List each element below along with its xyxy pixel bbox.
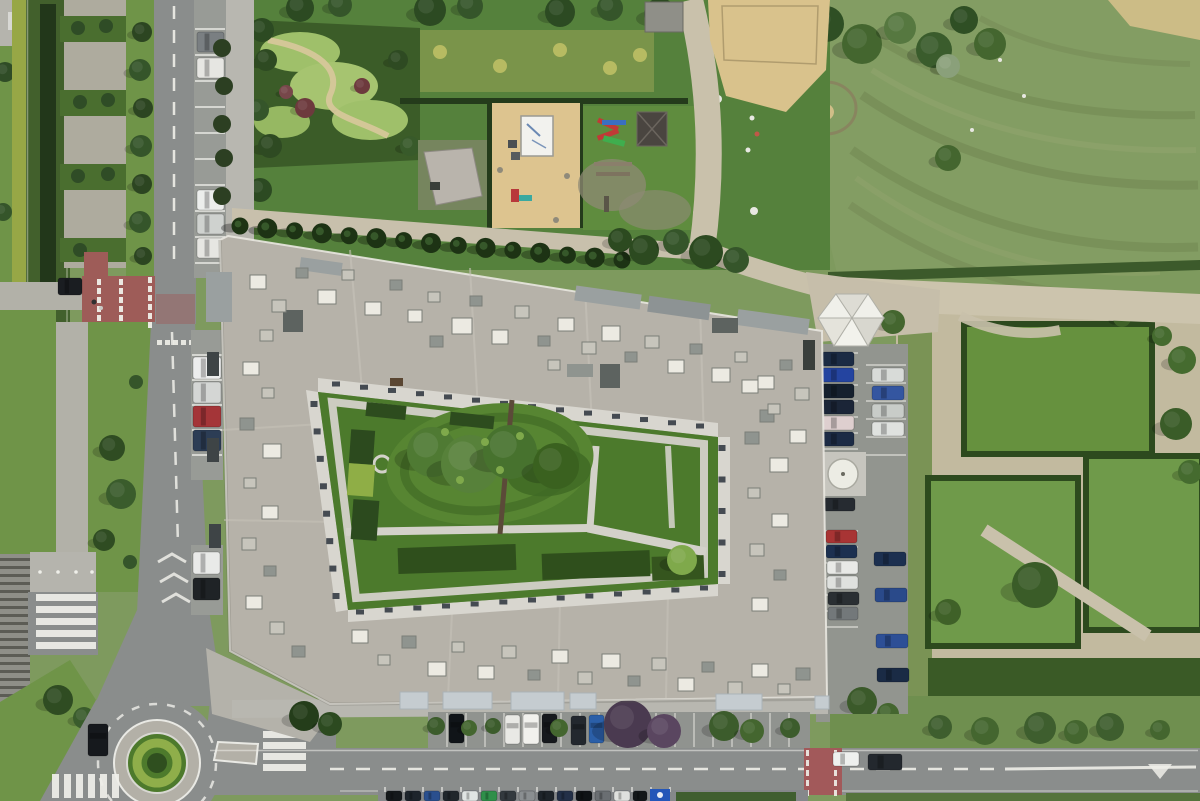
windows-south [643, 590, 651, 595]
hvac-unit [283, 310, 303, 332]
pavilion-tent [521, 116, 553, 156]
street-tree-light [132, 213, 143, 224]
parked-car-black-glass [201, 580, 206, 599]
wood-frame [596, 172, 630, 176]
purple-tree-light [610, 705, 634, 729]
parked-car [822, 384, 854, 398]
grove-tree-light [954, 9, 968, 23]
verge-bush-light [1028, 716, 1044, 732]
parked-car [822, 368, 854, 382]
zebra-south [76, 774, 83, 798]
median-tree-light [96, 531, 107, 542]
parked-car-glass [831, 370, 837, 381]
bottom-car-glass [580, 793, 583, 800]
roof-skylight [243, 362, 259, 375]
corner-tree-light [321, 715, 333, 727]
bottom-car-glass [466, 793, 469, 800]
parked-car [822, 416, 854, 430]
stair-steps [0, 662, 30, 665]
hedge-row [60, 16, 130, 42]
roof-skylight [272, 300, 286, 312]
bottom-bay-ticks [612, 787, 614, 792]
flowers-yellow [633, 48, 647, 62]
roof-skylight [502, 646, 516, 658]
roof-skylight [250, 275, 266, 289]
conifer-tip [344, 230, 351, 237]
conifer-tip [316, 227, 324, 235]
roof-skylight [260, 330, 273, 341]
bollards [74, 570, 78, 574]
field-flowers [998, 58, 1002, 62]
stair-steps [0, 582, 30, 585]
south-verge [830, 714, 1200, 748]
entrance-canopy [815, 696, 829, 709]
conifer-tip [480, 242, 488, 250]
yield-dots [165, 340, 170, 345]
parked-car-glass [831, 402, 837, 413]
parked-van-white-glass [525, 722, 538, 727]
parked-car-glass [883, 554, 889, 565]
windows-south [413, 606, 421, 611]
parked-car [872, 404, 904, 418]
roof-skylight [246, 596, 262, 609]
picnic-table [508, 140, 517, 148]
zebra-west [36, 642, 96, 649]
crossing-dots [148, 286, 152, 292]
row-shrubs [99, 19, 113, 33]
roof-skylight [778, 684, 790, 694]
courtyard-tree-light [490, 431, 517, 458]
bottom-car [538, 791, 554, 801]
parked-car-glass [881, 406, 887, 417]
worn-dirt [619, 190, 691, 230]
roof-skylight [270, 622, 284, 634]
windows-north [640, 417, 648, 422]
parked-car-glass [881, 388, 887, 399]
walker-red [755, 132, 760, 137]
roof-skylight [745, 432, 759, 444]
stair-steps [0, 630, 30, 633]
roof-skylight [652, 658, 666, 670]
bike-crossing-dashes [834, 780, 837, 786]
bottom-car-glass [637, 793, 640, 800]
entrance-canopy [400, 692, 428, 709]
park-plot [964, 324, 1152, 454]
cyclists [99, 306, 103, 310]
roof-skylight [602, 654, 620, 668]
car-on-road-white-glass [840, 754, 845, 765]
bike-crossing-dashes [834, 770, 837, 776]
bottom-bay-ticks [460, 787, 462, 792]
row-bush-light [487, 720, 495, 728]
stair-steps [0, 622, 30, 625]
hvac-unit [712, 318, 738, 333]
zebra-west [36, 630, 96, 637]
windows-west [317, 456, 324, 462]
roof-skylight [758, 376, 774, 389]
roof-skylight [735, 352, 747, 362]
courtyard-hedge [542, 550, 651, 580]
roof-skylight [780, 360, 792, 370]
crossing-dots [97, 288, 101, 294]
windows-north [696, 424, 704, 429]
bay-ticks [693, 713, 695, 747]
garden-bush-light [403, 138, 413, 148]
car-on-roundabout [88, 724, 108, 756]
stair-steps [0, 558, 30, 561]
windows-south [385, 608, 393, 613]
roof-skylight [690, 344, 702, 354]
roof-skylight [742, 380, 758, 393]
windows-north [360, 385, 368, 390]
entrance-canopy [716, 694, 762, 710]
parked-car-glass [836, 578, 842, 588]
conifer-tip [507, 245, 514, 252]
roof-skylight [728, 682, 742, 694]
parked-van-white [523, 714, 539, 744]
zebra-west [36, 594, 96, 601]
play-balls [750, 207, 758, 215]
roof-skylight [492, 330, 508, 344]
roof-skylight [262, 388, 274, 398]
canopy-highlights [516, 432, 524, 440]
west-grass [0, 310, 56, 554]
north-tree-light [611, 231, 623, 243]
slide-red [511, 189, 519, 202]
conifer-tip [235, 221, 242, 228]
bike-crossing-dashes [806, 750, 809, 756]
flowers-yellow [553, 43, 567, 57]
parked-car-glass [881, 370, 887, 381]
seam-metal-roof [206, 272, 232, 322]
windows-east [719, 445, 726, 451]
wedge-tree-light [47, 688, 62, 703]
stair-steps [0, 590, 30, 593]
minigolf-green [332, 100, 408, 140]
bottom-bay-ticks [441, 787, 443, 792]
bottom-bushes [676, 792, 796, 801]
bay-lines [195, 28, 225, 30]
bottom-bay-ticks [384, 787, 386, 792]
roof-skylight [262, 506, 278, 519]
canopy-highlights [456, 476, 464, 484]
bottom-car-glass [504, 793, 507, 800]
canopy-highlights [496, 466, 504, 474]
row-shrubs [71, 169, 85, 183]
roof-skylight [602, 326, 620, 341]
street-tree-light [135, 176, 145, 186]
verge-bush-light [931, 718, 943, 730]
willow-tree-light [939, 57, 951, 69]
yield-dots [181, 340, 186, 345]
windows-south [557, 596, 565, 601]
windows-south [585, 594, 593, 599]
parked-car [827, 576, 858, 589]
roof-skylight [774, 570, 786, 580]
hedge-row [60, 90, 130, 116]
sign-glyph [657, 792, 663, 798]
bollards [56, 570, 60, 574]
roof-skylight [318, 290, 336, 304]
bottom-bay-ticks [593, 787, 595, 792]
walkers [750, 116, 755, 121]
lot-bush-light [884, 313, 896, 325]
bottom-car [424, 791, 440, 801]
grove-tree-light [978, 32, 994, 48]
car-on-road-white [833, 752, 859, 766]
bike-crossing-dashes [806, 760, 809, 766]
stair-steps [0, 678, 30, 681]
pergola-grid [645, 2, 683, 32]
conifer-tip [453, 240, 460, 247]
parked-car [876, 634, 908, 648]
hedge-row [60, 164, 130, 190]
zebra-west [36, 618, 96, 625]
garden-tree-light [549, 0, 564, 15]
parked-car-red [826, 530, 857, 543]
bottom-car [576, 791, 592, 801]
parked-car [872, 368, 904, 382]
parked-car [822, 352, 854, 366]
roof-skylight [712, 368, 730, 382]
parked-car-black [193, 578, 220, 600]
bike-crossing-dashes [806, 770, 809, 776]
roof-skylight [752, 664, 768, 677]
roof-skylight [478, 666, 494, 679]
hvac-unit [567, 364, 593, 377]
parked-car-white [197, 58, 224, 78]
yield-dots [157, 340, 162, 345]
roof-skylight [292, 646, 305, 657]
planting-bed [351, 499, 380, 541]
parked-car-red [193, 406, 221, 427]
parked-car [822, 432, 854, 446]
windows-south [471, 602, 479, 607]
bollards [38, 570, 42, 574]
bottom-car [633, 791, 647, 801]
stair-steps [0, 606, 30, 609]
entrance-canopy [570, 693, 596, 709]
crossing-dots [148, 295, 152, 301]
roof-skylight [452, 318, 472, 334]
roof-skylight [244, 478, 256, 488]
planting-bed [349, 429, 375, 465]
canopy-highlights [441, 428, 449, 436]
grove-tree-light [921, 36, 939, 54]
street-tree-light [132, 61, 143, 72]
bottom-car-green-glass [485, 793, 488, 800]
wood-post [604, 196, 609, 212]
bright-bush-light [671, 548, 686, 563]
umbrella-pole [841, 472, 845, 476]
north-tree-light [726, 250, 739, 263]
layer-park-east [896, 300, 1200, 744]
row-shrubs [73, 95, 87, 109]
windows-north [444, 394, 452, 399]
roof-skylight [772, 514, 788, 527]
stair-steps [0, 670, 30, 673]
windows-north [416, 391, 424, 396]
bottom-car-glass [599, 793, 602, 800]
roof-skylight [515, 306, 529, 318]
park-tree-light [1172, 349, 1186, 363]
parked-car-silver [193, 382, 221, 403]
bottom-bushes-right [846, 793, 1200, 801]
windows-north [388, 388, 396, 393]
row-tree-light [713, 714, 728, 729]
bottom-car [595, 791, 611, 801]
verge-bush-light [975, 720, 989, 734]
windows-west [311, 401, 318, 407]
canopy-highlights [481, 438, 489, 446]
conifer-tip [261, 222, 269, 230]
roof-skylight [402, 636, 416, 648]
parked-car-glass [886, 670, 892, 681]
parked-car-white [505, 715, 520, 744]
planting-bed-bright [347, 463, 375, 497]
bay-lines-right [866, 364, 906, 366]
roof-skylight [342, 270, 354, 280]
parked-car-dark-glass [573, 724, 585, 729]
windows-west [333, 593, 340, 599]
roof-skylight [452, 642, 464, 652]
roof-skylight [263, 444, 281, 458]
bottom-car [519, 791, 535, 801]
courtyard-tree-light [413, 433, 438, 458]
bottom-car-glass [390, 793, 393, 800]
street-tree-light [136, 249, 145, 258]
median-tree-light [110, 482, 125, 497]
bottom-car [405, 791, 421, 801]
roof-skylight [625, 352, 637, 362]
row-shrubs [101, 167, 115, 181]
courtyard-path [668, 446, 672, 528]
grove-tree-light [847, 28, 867, 48]
car-at-crossing-glass [65, 280, 69, 294]
row-shrubs [71, 21, 85, 35]
bottom-bay-ticks [517, 787, 519, 792]
bottom-car-glass [542, 793, 545, 800]
bottom-car [557, 791, 573, 801]
bottom-bay-ticks [403, 787, 405, 792]
parked-car-white-glass [205, 240, 210, 257]
courtyard-path [346, 528, 588, 532]
roof-skylight [240, 418, 254, 430]
roof-skylight [528, 670, 540, 680]
roof-skylight [668, 360, 684, 373]
park-tree-light [938, 602, 951, 615]
zebra-east-link [263, 753, 306, 760]
verge-bush-light [1153, 722, 1163, 732]
parked-car-glass [831, 418, 837, 429]
crossing-dots [148, 277, 152, 283]
parked-car-silver [197, 214, 224, 234]
roof-skylight [378, 655, 390, 665]
roof-skylight [578, 672, 592, 684]
bottom-car-glass [523, 793, 526, 800]
bike-crossing-red [82, 276, 155, 322]
crossing-dots [119, 315, 123, 321]
walkers [746, 148, 751, 153]
bay-trees [213, 187, 231, 205]
field-tree-light [938, 148, 951, 161]
stair-steps [0, 638, 30, 641]
parked-car-glass [833, 500, 839, 510]
median-shrubs [129, 375, 143, 389]
bottom-car [462, 791, 478, 801]
row-bush-light [429, 719, 438, 728]
verge-bush-light [1100, 716, 1114, 730]
bay-ticks [446, 713, 448, 747]
windows-west [326, 538, 333, 544]
solar-panel [209, 524, 221, 548]
car-on-road-dark [868, 754, 902, 770]
parked-car [877, 668, 909, 682]
parked-car-white-glass [205, 60, 210, 77]
bay-trees [215, 77, 233, 95]
parked-car-white [193, 552, 220, 574]
flowers-yellow [493, 59, 507, 73]
crossing-dots [119, 279, 123, 285]
parked-car-red-glass [835, 532, 841, 542]
zebra-south [52, 774, 59, 798]
parked-car [872, 386, 904, 400]
stair-steps [0, 646, 30, 649]
parked-car-glass [831, 434, 837, 445]
windows-north [556, 407, 564, 412]
windows-west [329, 566, 336, 572]
windows-south [499, 600, 507, 605]
bottom-car-green [481, 791, 497, 801]
conifer-tip [562, 250, 569, 257]
conifer-tip [425, 237, 433, 245]
wedge-tree-light [76, 709, 87, 720]
car-at-crossing [58, 278, 82, 295]
roof-skylight [678, 678, 694, 691]
parked-car-black-glass [451, 722, 463, 727]
north-tree-light [666, 232, 679, 245]
corner-tree-light [293, 704, 308, 719]
parked-car [872, 422, 904, 436]
park-tree-light [1181, 463, 1193, 475]
parked-car-white-glass [205, 192, 210, 209]
zebra-south [112, 774, 119, 798]
parked-car-white-glass [201, 554, 206, 573]
parked-car-glass [837, 594, 843, 604]
bay-trees [215, 149, 233, 167]
windows-north [332, 382, 340, 387]
stair-steps [0, 598, 30, 601]
row-shrubs [101, 93, 115, 107]
windows-south [700, 586, 708, 591]
roof-skylight [470, 296, 482, 306]
windows-south [528, 598, 536, 603]
bay-trees [213, 39, 231, 57]
crossing-dots [119, 306, 123, 312]
windows-west [314, 428, 321, 434]
windows-north [612, 414, 620, 419]
parked-van [828, 607, 858, 620]
parked-car-glass [831, 354, 837, 365]
parked-car [824, 498, 855, 511]
bay-ticks [769, 713, 771, 747]
purple-shrub-light [281, 87, 288, 94]
park-tree-light [1155, 328, 1165, 338]
parked-van-white-glass [201, 359, 206, 378]
bottom-car-glass [561, 793, 564, 800]
roof-skylight [752, 598, 768, 611]
roof-skylight [365, 302, 381, 315]
